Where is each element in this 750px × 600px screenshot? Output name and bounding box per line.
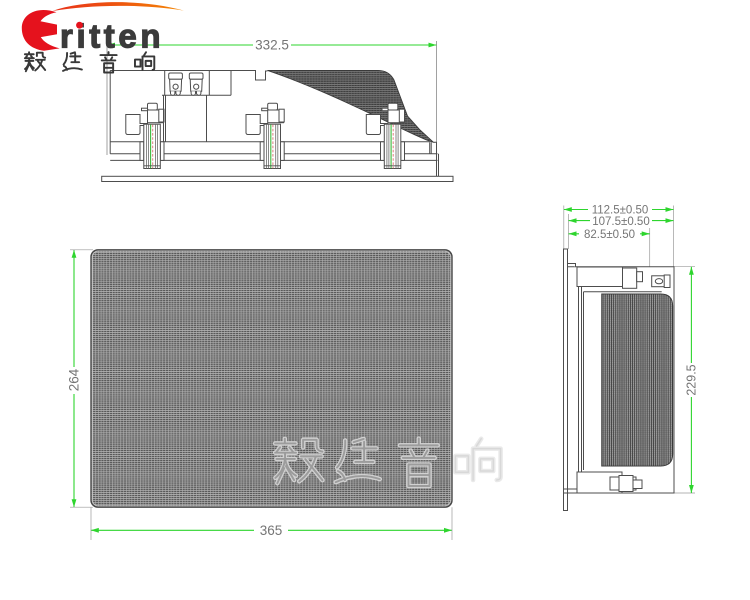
svg-text:229.5: 229.5 [684,364,698,395]
svg-text:107.5±0.50: 107.5±0.50 [592,216,649,228]
svg-text:365: 365 [260,523,283,538]
svg-text:82.5±0.50: 82.5±0.50 [584,229,635,241]
svg-text:332.5: 332.5 [255,38,289,53]
svg-text:264: 264 [67,368,82,391]
svg-text:112.5±0.50: 112.5±0.50 [592,205,649,217]
svg-text:ritten: ritten [60,18,164,55]
